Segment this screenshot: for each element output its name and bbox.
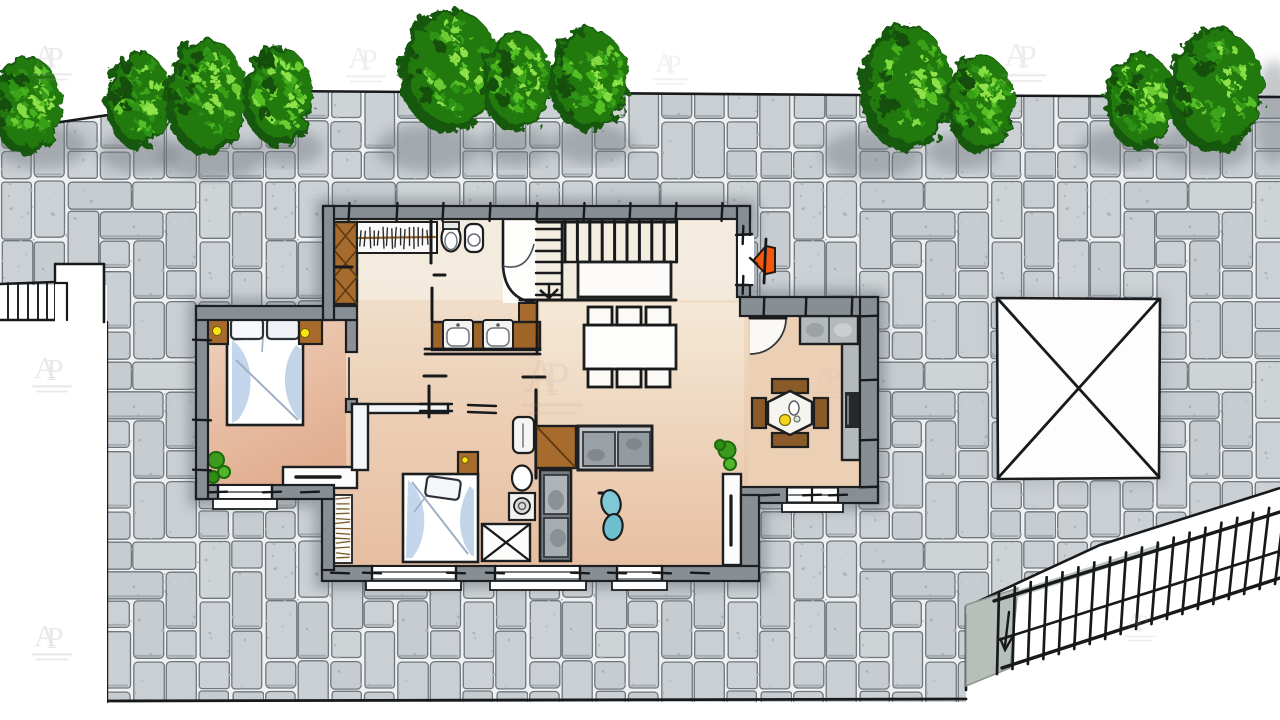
svg-text:P: P: [1136, 611, 1149, 637]
svg-text:P: P: [47, 621, 64, 655]
svg-text:P: P: [1018, 39, 1037, 76]
svg-text:P: P: [47, 41, 64, 75]
svg-text:P: P: [47, 353, 64, 387]
svg-text:P: P: [361, 43, 378, 77]
svg-text:P: P: [666, 50, 681, 80]
svg-text:P: P: [826, 363, 841, 393]
svg-text:P: P: [544, 354, 570, 406]
